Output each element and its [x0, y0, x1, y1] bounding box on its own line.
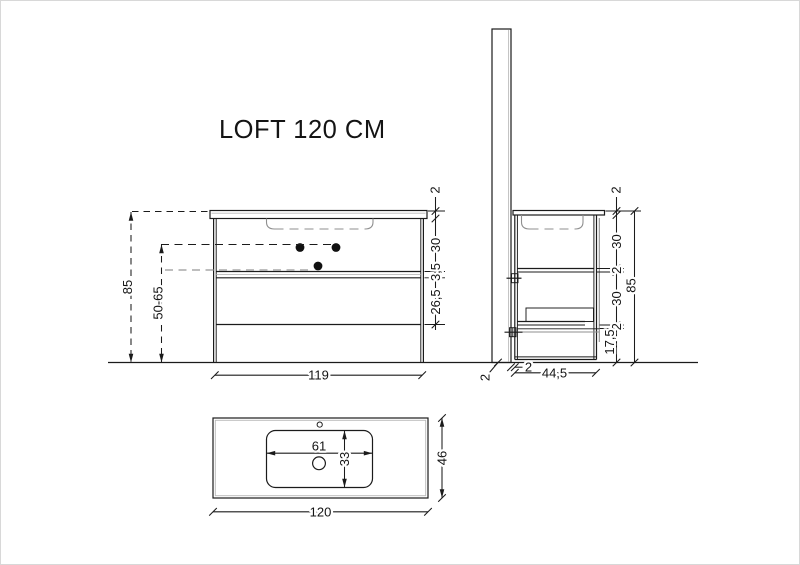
dim-side-chain-upper: 30: [609, 234, 624, 248]
side-countertop: [513, 211, 605, 216]
front-right-dimension-chain: 2 30 3,5 26,5: [425, 186, 446, 330]
dim-front-drain-range: 50-65: [151, 286, 166, 319]
front-drain-range-dimension: 50-65: [151, 245, 166, 363]
technical-drawing-canvas: LOFT 120 CM: [1, 1, 799, 564]
dim-side-chain-divider: 2: [609, 267, 624, 274]
mounting-hole-right: [332, 243, 341, 252]
drawing-sheet: LOFT 120 CM: [0, 0, 800, 565]
top-counter-width-dimension: 120: [209, 504, 432, 519]
side-total-height-dimension: 85: [623, 207, 638, 366]
front-cabinet-body: [214, 219, 424, 363]
dim-side-chain-bottom: 17,5: [602, 329, 617, 354]
mounting-hole-drain: [314, 262, 323, 271]
side-basin-outline: [522, 215, 584, 229]
dim-front-chain-counter: 2: [427, 186, 442, 193]
front-view: 85 50-65 119 2 30: [120, 186, 445, 382]
front-width-dimension: 119: [211, 368, 426, 383]
mounting-holes: [296, 243, 341, 270]
wall-panel: [492, 29, 511, 363]
top-counter-depth-dimension: 46: [435, 414, 450, 502]
side-view: 2 30 2 30 2 17,5 85 2 2: [477, 29, 641, 381]
side-internal-drawer: [517, 308, 599, 332]
top-view: 61 33 46 120: [209, 414, 449, 519]
dim-top-counter-width: 120: [310, 504, 332, 519]
dim-front-chain-rail: 3,5: [428, 263, 443, 281]
side-cabinet-body: [515, 215, 600, 360]
dim-top-basin-width: 61: [312, 439, 326, 454]
top-basin-width-dimension: 61: [267, 439, 373, 456]
dim-front-total-height: 85: [120, 280, 135, 294]
dim-side-depth: 44,5: [542, 366, 567, 381]
dim-front-chain-drawer: 30: [428, 238, 443, 252]
top-countertop-inner-line: [215, 420, 425, 495]
front-countertop: [210, 211, 427, 219]
dim-top-basin-depth: 33: [337, 452, 352, 466]
dim-side-panel-thickness: 2: [477, 374, 492, 381]
dim-side-total-height: 85: [623, 278, 638, 292]
drain-hole: [313, 457, 326, 470]
dim-side-chain-shelf: 2: [609, 323, 624, 330]
dim-top-counter-depth: 46: [435, 451, 450, 465]
dim-side-wall-gap: 2: [525, 360, 532, 375]
drawing-title: LOFT 120 CM: [219, 116, 386, 144]
faucet-hole: [317, 422, 322, 427]
top-basin-depth-dimension: 33: [337, 431, 352, 488]
front-basin-outline: [267, 219, 374, 230]
dim-side-chain-counter: 2: [608, 186, 623, 193]
dim-front-chain-lower-drawer: 26,5: [428, 289, 443, 314]
dim-side-chain-middle: 30: [609, 291, 624, 305]
dim-front-width: 119: [308, 368, 329, 383]
